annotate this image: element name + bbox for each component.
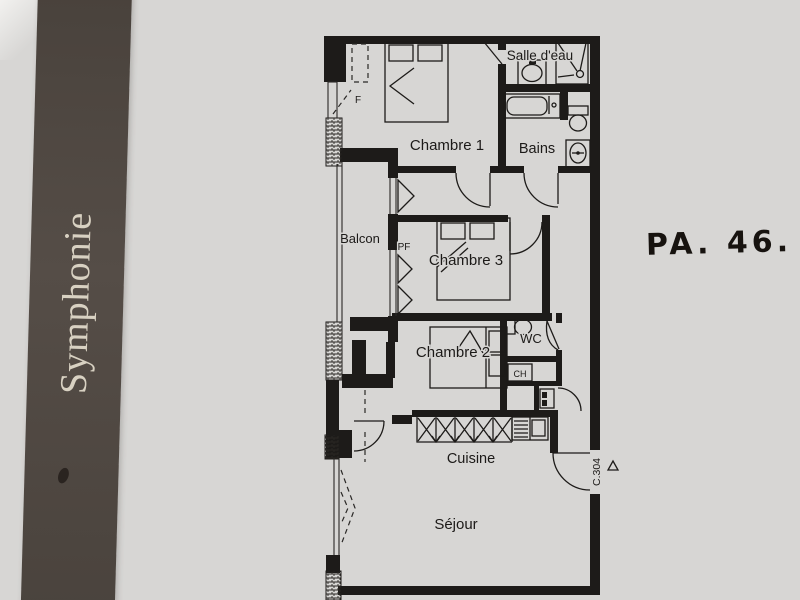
label-unit-door-number: C.304 [591, 458, 603, 486]
window-chambre1-balcony [390, 178, 414, 214]
label-wc: WC [520, 331, 542, 346]
window-pf-french-door [390, 250, 412, 316]
door-chambre1 [456, 173, 490, 207]
label-cuisine: Cuisine [447, 451, 495, 467]
washbasin-bains [566, 140, 590, 167]
window-sejour [334, 458, 355, 555]
label-bains: Bains [519, 141, 555, 157]
room-labels: Salle d'eau Chambre 1 Bains Balcon PF F … [340, 48, 603, 533]
door-wc [546, 321, 559, 350]
entrance-direction-marker [608, 461, 618, 470]
kitchen-sink-unit [512, 417, 548, 440]
floorplan-drawing: Salle d'eau Chambre 1 Bains Balcon PF F … [0, 0, 800, 600]
door-sejour [354, 421, 384, 451]
door-bains [524, 173, 558, 207]
label-balcon: Balcon [340, 231, 380, 246]
kitchen-counter [417, 417, 512, 442]
toilet-bains [568, 106, 588, 131]
label-chambre1: Chambre 1 [410, 137, 484, 154]
washbasin-salle-deau [518, 59, 546, 86]
plan-walls [324, 36, 600, 595]
label-salle-deau: Salle d'eau [507, 48, 573, 63]
label-chambre2: Chambre 2 [416, 344, 490, 361]
label-pf-window: PF [398, 242, 411, 253]
hand-basin-nook [540, 389, 554, 408]
door-storage-nook [558, 388, 581, 411]
bed-chambre1 [385, 42, 448, 122]
label-f-window: F [355, 95, 361, 106]
label-sejour: Séjour [434, 516, 477, 533]
label-chambre3: Chambre 3 [429, 252, 503, 269]
dashed-closet-lines [352, 44, 368, 462]
photographed-floorplan-page: Symphonie PA. 46. [0, 0, 800, 600]
door-entrance [553, 453, 618, 490]
window-f-left-wall [328, 82, 351, 118]
bathtub [504, 94, 560, 118]
label-water-heater: CH [514, 369, 527, 379]
door-chambre3 [510, 222, 542, 254]
